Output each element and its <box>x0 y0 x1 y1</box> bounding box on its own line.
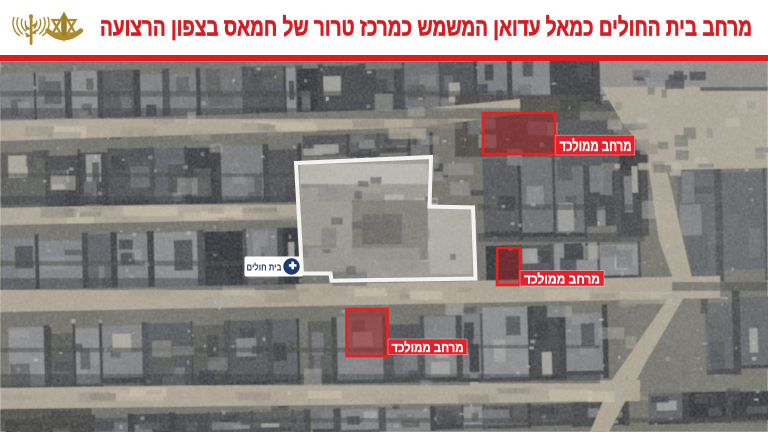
svg-text:מרחב ממולכד: מרחב ממולכד <box>560 137 632 155</box>
svg-text:מרחב בית החולים כמאל עדואן המש: מרחב בית החולים כמאל עדואן המשמש כמרכז ט… <box>100 14 752 42</box>
svg-text:בית חולים: בית חולים <box>247 262 282 273</box>
svg-text:מרחב ממולכד: מרחב ממולכד <box>392 340 464 355</box>
svg-text:מרחב ממולכד: מרחב ממולכד <box>524 271 600 286</box>
